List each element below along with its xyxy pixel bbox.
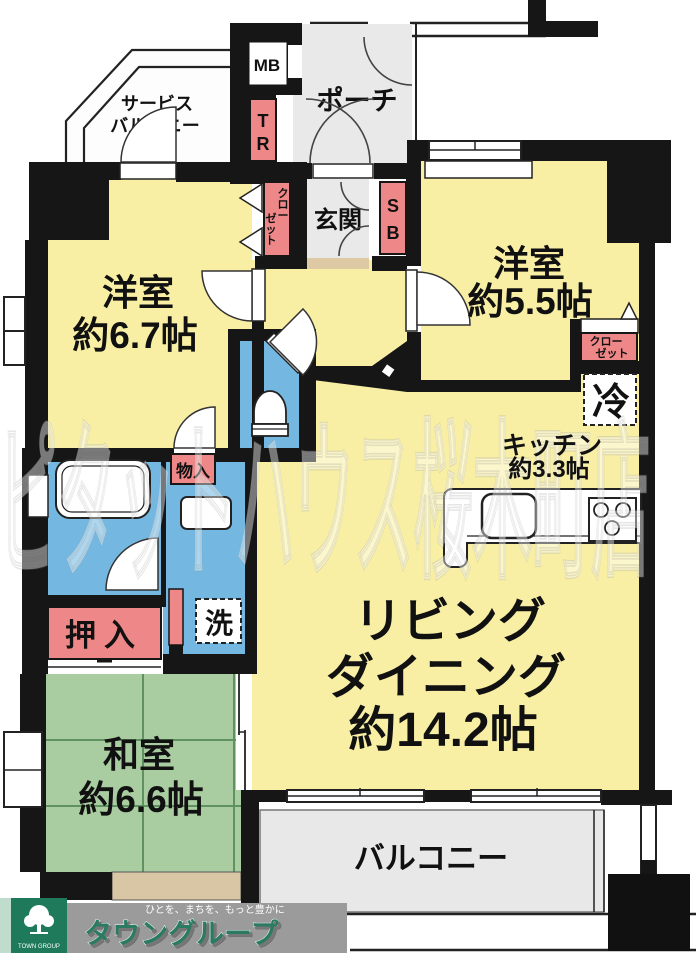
svg-text:リビング: リビング	[354, 595, 546, 648]
svg-text:バルコニー: バルコニー	[354, 841, 508, 876]
svg-text:ー: ー	[278, 210, 289, 222]
svg-text:約14.2帖: 約14.2帖	[348, 704, 537, 757]
svg-text:S: S	[387, 196, 399, 216]
svg-text:B: B	[387, 223, 400, 243]
svg-text:T: T	[258, 111, 269, 131]
svg-text:ゼット: ゼット	[596, 346, 629, 360]
svg-text:洋室: 洋室	[493, 243, 565, 284]
svg-text:ト: ト	[266, 234, 277, 247]
svg-text:約6.7帖: 約6.7帖	[72, 315, 197, 356]
svg-text:約3.3帖: 約3.3帖	[508, 455, 589, 483]
svg-text:押入: 押入	[65, 618, 143, 653]
svg-text:クロー: クロー	[590, 335, 623, 348]
svg-text:R: R	[257, 134, 270, 154]
svg-text:タウングループ: タウングループ	[84, 918, 279, 949]
svg-text:ひとを、まちを、もっと豊かに: ひとを、まちを、もっと豊かに	[145, 903, 285, 916]
svg-text:和室: 和室	[103, 734, 175, 775]
svg-text:洗: 洗	[205, 608, 233, 639]
svg-text:ダイニング: ダイニング	[326, 651, 566, 704]
svg-text:洋室: 洋室	[102, 272, 174, 313]
svg-text:約6.6帖: 約6.6帖	[78, 779, 203, 820]
svg-text:ゼ: ゼ	[266, 211, 277, 225]
svg-text:約5.5帖: 約5.5帖	[467, 281, 592, 322]
svg-text:MB: MB	[254, 56, 280, 75]
svg-text:TOWN GROUP: TOWN GROUP	[18, 944, 60, 950]
